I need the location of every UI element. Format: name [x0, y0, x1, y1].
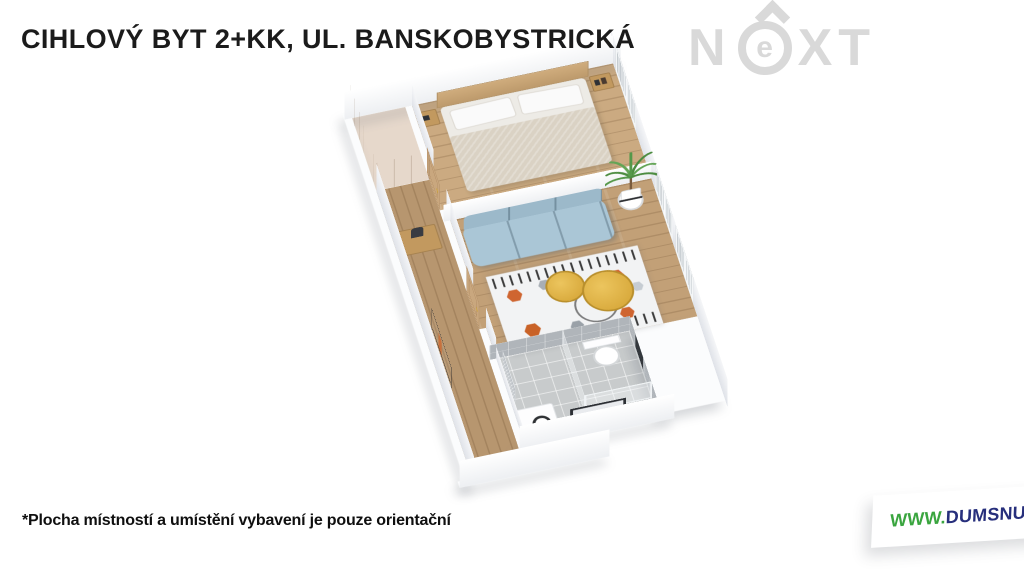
url-name: DUMSNU	[945, 502, 1024, 527]
logo-letter-n: N	[688, 18, 732, 78]
disclaimer-note: *Plocha místností a umístění vybavení je…	[22, 512, 451, 530]
real-estate-floorplan-page: { "page": {"background": "#ffffff"}, "he…	[0, 0, 1024, 575]
door-handle	[476, 306, 477, 313]
website-badge: WWW.DUMSNU.COM	[871, 484, 1024, 548]
nightstand-decor	[600, 77, 607, 84]
logo-house-e-icon: e	[738, 21, 792, 75]
window-mullion	[685, 253, 686, 279]
floor-plan-3d	[352, 63, 751, 532]
rug-hexagon	[505, 288, 525, 304]
door-handle	[437, 187, 438, 194]
nightstand-decor	[594, 79, 601, 85]
url-prefix: WWW.	[890, 507, 947, 530]
window-mullion	[626, 77, 627, 103]
next-logo-watermark: N e XT	[688, 18, 876, 78]
page-title: CIHLOVÝ BYT 2+KK, UL. BANSKOBYSTRICKÁ	[21, 24, 635, 55]
logo-roof-icon	[754, 0, 789, 35]
logo-letters-xt: XT	[798, 18, 876, 78]
website-url: WWW.DUMSNU.COM	[872, 499, 1024, 532]
window-mullion	[664, 192, 665, 218]
